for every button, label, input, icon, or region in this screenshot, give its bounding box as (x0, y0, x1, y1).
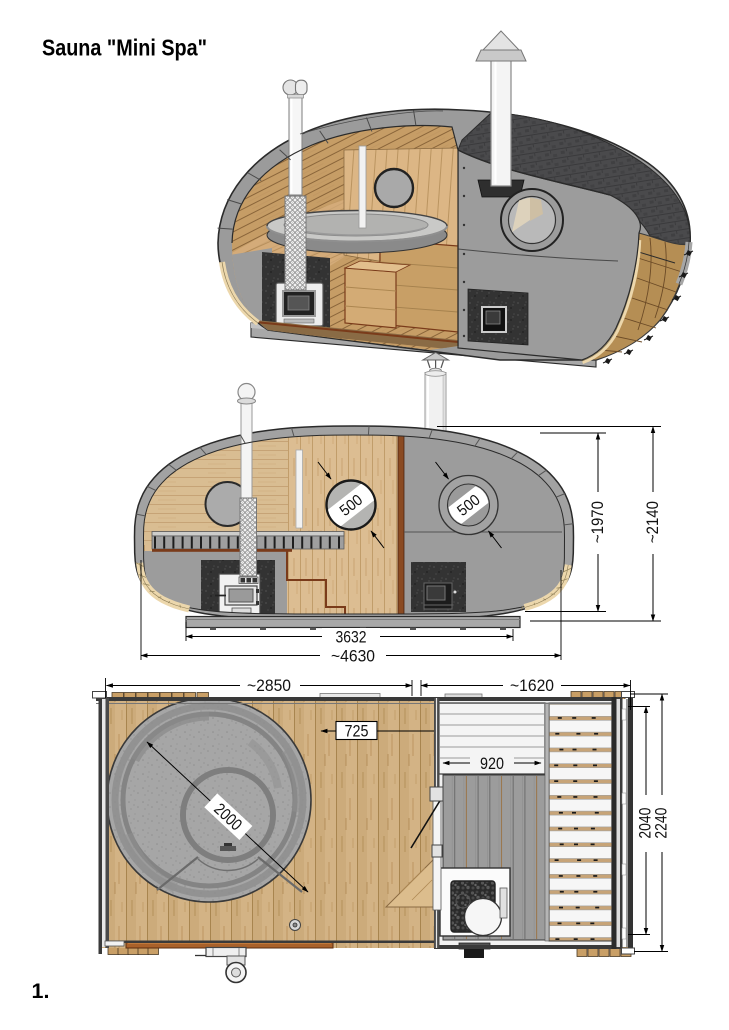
svg-text:2240: 2240 (653, 808, 671, 839)
svg-text:920: 920 (480, 755, 504, 773)
svg-text:~2140: ~2140 (644, 501, 662, 543)
svg-text:~1970: ~1970 (589, 501, 607, 543)
svg-text:~4630: ~4630 (331, 647, 375, 665)
svg-text:~2850: ~2850 (247, 677, 291, 695)
svg-text:~1620: ~1620 (510, 677, 554, 695)
svg-text:Sauna "Mini Spa": Sauna "Mini Spa" (42, 35, 207, 61)
svg-text:1.: 1. (32, 979, 50, 1003)
svg-text:725: 725 (345, 723, 369, 741)
svg-text:3632: 3632 (336, 628, 367, 646)
